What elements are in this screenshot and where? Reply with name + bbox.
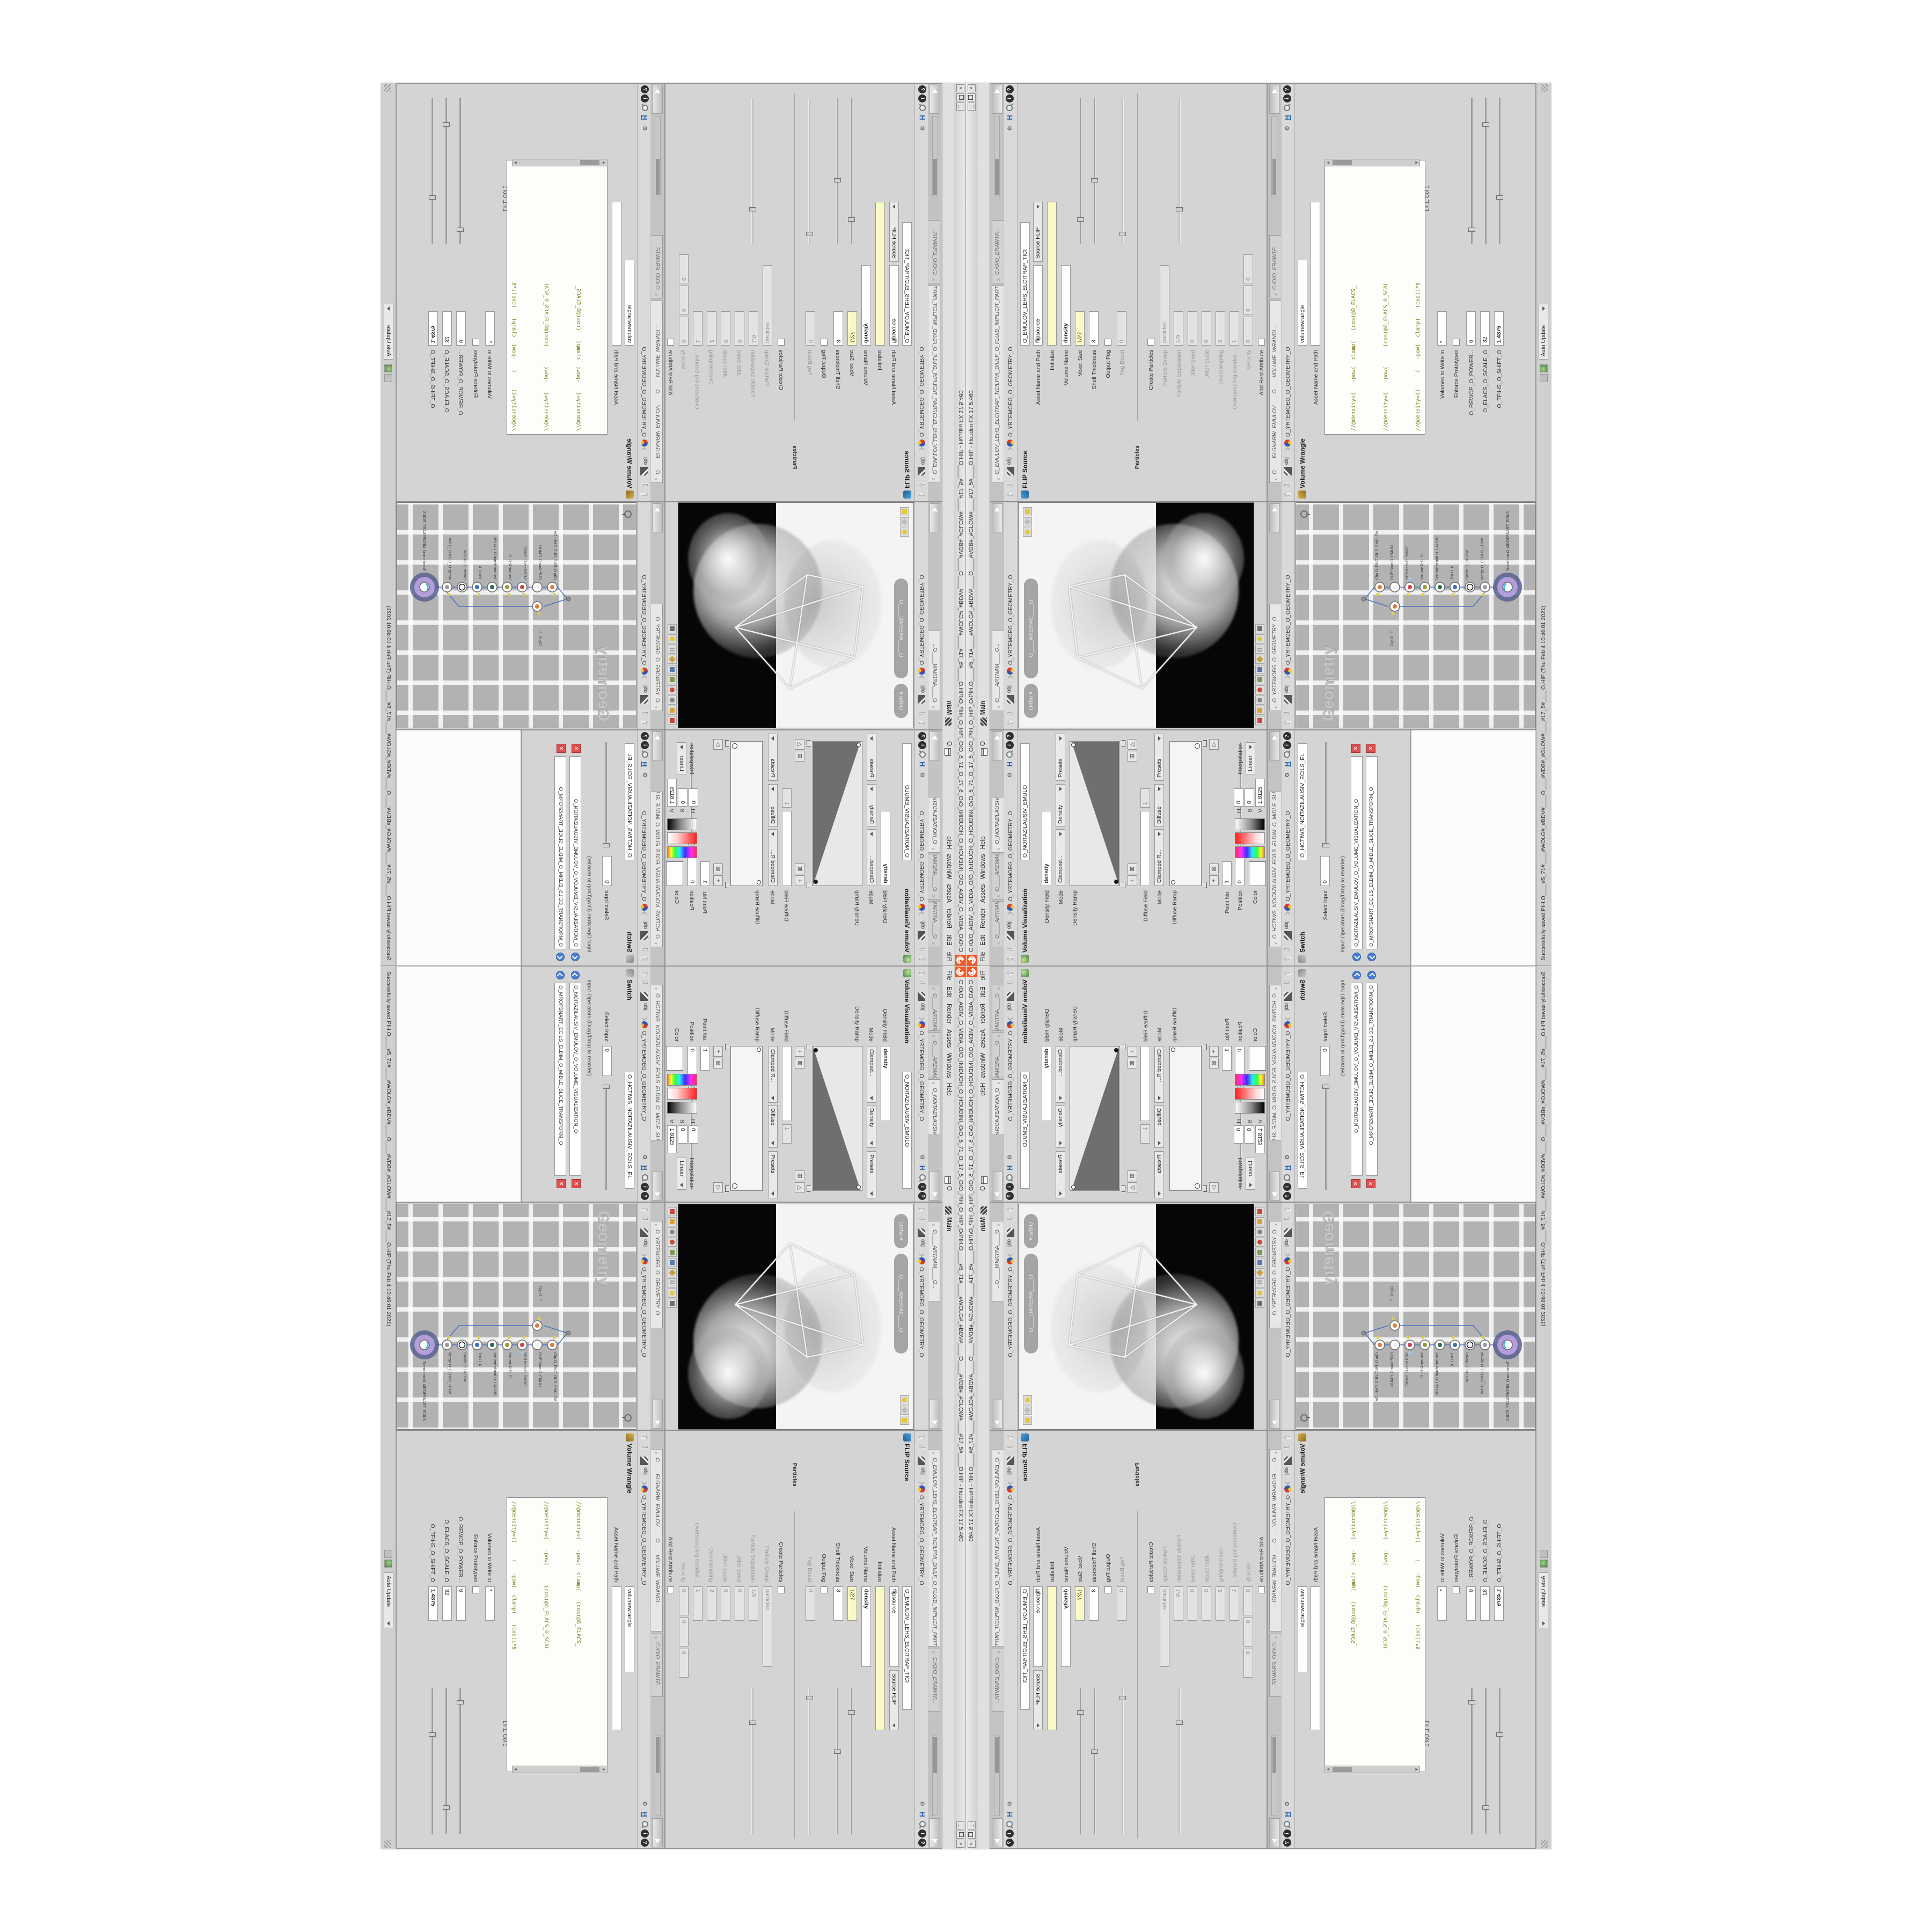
gear-icon[interactable]: ⚙ [917, 123, 927, 133]
density-ramp-editor[interactable] [1070, 741, 1120, 886]
voxel-size-field[interactable]: 1/27 [847, 311, 857, 346]
pane-play-strip[interactable] [992, 731, 1002, 760]
density-presets-dropdown[interactable]: Presets [1056, 734, 1065, 781]
v-field[interactable]: 1.8125 [1255, 779, 1265, 807]
input-operator-2[interactable]: O_MROFSNART_ECILS_ELDIM_O_MIDLE_SLICE_TR… [554, 756, 566, 949]
hue-bar[interactable] [667, 846, 697, 858]
menu-help[interactable]: Help [980, 1083, 986, 1096]
window-layout-o[interactable]: O [946, 1186, 952, 1191]
menu-render[interactable]: Render [946, 1004, 952, 1024]
light-icon[interactable] [1255, 1289, 1264, 1298]
gear-icon[interactable]: ⚙ [917, 1152, 927, 1162]
oversampling-field[interactable]: 2 [1216, 1586, 1225, 1621]
info-icon[interactable]: i [641, 741, 649, 749]
houdini-help-icon[interactable]: H [1283, 1810, 1292, 1819]
search-icon[interactable] [1283, 1820, 1291, 1828]
voxel-size-slider[interactable] [1080, 1688, 1082, 1834]
pin-icon[interactable] [1300, 510, 1308, 518]
oversampling-field[interactable]: 2 [1216, 311, 1225, 346]
input2-delete-button[interactable]: x [1366, 744, 1375, 753]
gear-icon[interactable]: ⚙ [1283, 1152, 1292, 1162]
particle-separation-field[interactable]: 1/9 [749, 311, 758, 346]
ramp-box-button[interactable]: ⊞ [795, 1170, 804, 1181]
vex-snippet-editor[interactable]: //@density=( -pow( clamp( (cos(@O_ELACS_… [1324, 1497, 1425, 1772]
pin-icon[interactable] [1300, 1414, 1308, 1422]
gear-icon[interactable]: ⚙ [640, 123, 649, 133]
search-icon[interactable] [641, 1820, 649, 1828]
source-flip-dropdown[interactable]: Source FLIP [1033, 1670, 1043, 1730]
path-root[interactable]: obj [1283, 1239, 1292, 1247]
tab-volume-wrangle[interactable]: xO____ELGNARW_EMULOV____O____VOLUME_WRAN… [1269, 301, 1281, 483]
shade-icon[interactable] [900, 1395, 909, 1404]
diffuse-tri-button[interactable]: ▷ [1209, 1182, 1219, 1193]
render-icon[interactable] [1255, 655, 1264, 664]
oversampling-bandwidth-field[interactable]: 1 [693, 311, 702, 346]
nav-up-icon[interactable]: ⇧ [917, 1206, 927, 1213]
input2-connect-button[interactable] [556, 971, 565, 979]
asset-name-field[interactable]: flipsource [889, 1586, 899, 1667]
help-icon[interactable]: ? [1283, 732, 1291, 740]
ramp-handle-low[interactable] [1114, 1048, 1118, 1052]
ramp-tri-button[interactable]: △ [1128, 739, 1137, 750]
tab-mantra[interactable]: xO____ARTNAM____O... [992, 985, 1004, 1031]
power-field[interactable]: 6 [456, 1586, 466, 1621]
fog-boost-field[interactable]: 0 [1117, 311, 1126, 346]
select-input-slider[interactable] [1325, 742, 1327, 847]
search-icon[interactable] [1006, 1174, 1014, 1182]
density-dropdown[interactable]: Density [1056, 784, 1065, 827]
nav-up-icon[interactable]: ⇧ [1005, 1434, 1015, 1441]
tab-switch[interactable]: xO_HCTIWS_NOITAZILAUSIV_ECILS_ELDIM_O_MI… [651, 985, 663, 1140]
enforce-prototypes-checkbox[interactable] [472, 1586, 479, 1593]
mode-dropdown[interactable]: Clamped... [867, 1046, 876, 1103]
saturation-bar[interactable] [1235, 832, 1265, 844]
input1-connect-button[interactable] [1352, 971, 1361, 979]
ramp-box-button[interactable]: ⊞ [795, 751, 804, 762]
saturation-bar[interactable] [667, 832, 697, 844]
network-canvas[interactable]: Geometry [397, 502, 636, 728]
move-tool-icon[interactable] [668, 1217, 677, 1226]
camera-pill[interactable]: O____AREMAC____O [1024, 1254, 1038, 1353]
tab-scrollbar[interactable] [994, 116, 1000, 196]
velocity-z-field[interactable]: 0 [1243, 1649, 1253, 1678]
layers-icon[interactable] [1023, 517, 1032, 526]
scale-field[interactable]: 32 [1480, 1586, 1490, 1621]
power-field[interactable]: 6 [1466, 1586, 1476, 1621]
diffuse-field-value[interactable] [1140, 811, 1150, 886]
particle-group-field[interactable]: particles [1160, 265, 1169, 346]
light-icon[interactable] [1255, 634, 1264, 643]
power-slider[interactable] [1471, 98, 1473, 244]
close-button[interactable]: × [956, 84, 964, 92]
tab-network[interactable]: xO_YRTEMOEG_O_GEOMETRY_O [651, 1221, 663, 1328]
shell-thickness-slider[interactable] [836, 98, 838, 244]
pane-play-strip[interactable] [992, 1818, 1002, 1847]
ramp-delete-button[interactable]: ⊠ [795, 863, 804, 874]
tab-scrollbar[interactable] [1271, 116, 1277, 196]
scale-slider[interactable] [445, 1688, 447, 1834]
diffuse-presets-dropdown[interactable]: Presets [1154, 1151, 1164, 1198]
tab-software-path[interactable]: xC:/O/O_ERAWTF... [1269, 1634, 1281, 1697]
menu-file[interactable]: File [980, 970, 986, 980]
tab-scene-view[interactable]: xO____ARTNAM____O... [928, 631, 940, 711]
shift-field[interactable]: 1.4375 [428, 311, 438, 346]
density-field-value[interactable]: density [1042, 1046, 1051, 1121]
initialize-field[interactable] [875, 202, 885, 346]
update-mode-dropdown[interactable]: Auto Update [1539, 1572, 1548, 1628]
input-operator-1[interactable]: O_NOITAZILAUSIV_EMULOV_O_VOLUME_VISUALIZ… [1351, 756, 1363, 949]
source-flip-dropdown[interactable]: Source FLIP [889, 1670, 899, 1730]
gear-icon[interactable]: ⚙ [917, 770, 927, 780]
camera-icon[interactable] [1255, 624, 1264, 633]
path-root[interactable]: obj [1283, 685, 1292, 693]
density-field-value[interactable]: density [881, 811, 890, 886]
layers-icon[interactable] [900, 1406, 909, 1415]
particle-group-field[interactable]: particles [763, 1586, 772, 1667]
menu-help[interactable]: Help [946, 1083, 952, 1096]
particle-separation-slider[interactable] [751, 1688, 753, 1834]
shell-thickness-field[interactable]: 3 [1089, 311, 1099, 346]
diffuse-handle-left[interactable] [1171, 1048, 1175, 1052]
path-root[interactable]: obj [1006, 685, 1015, 693]
nav-up-icon[interactable]: ⇧ [917, 1434, 927, 1441]
select-input-slider[interactable] [605, 1085, 607, 1190]
pane-play-strip[interactable] [1269, 731, 1280, 760]
menu-edit[interactable]: Edit [946, 935, 952, 946]
gear-icon[interactable]: ⚙ [1283, 123, 1292, 133]
velocity-x-field[interactable]: 0 [679, 317, 689, 346]
volumes-to-write-field[interactable]: * [485, 1586, 495, 1621]
velocity-x-field[interactable]: 0 [679, 1586, 689, 1615]
help-icon[interactable]: ? [641, 1192, 649, 1200]
nav-down-icon[interactable]: ⇩ [640, 481, 649, 488]
pane-play-strip[interactable] [930, 1818, 940, 1847]
ortho-pill[interactable]: Ortho ▾ [894, 684, 908, 718]
ramp-add-button[interactable]: + [795, 875, 804, 886]
fog-boost-slider[interactable] [1122, 1688, 1124, 1834]
add-rest-attribute-checkbox[interactable] [1258, 339, 1265, 346]
input-operator-1[interactable]: O_NOITAZILAUSIV_EMULOV_O_VOLUME_VISUALIZ… [569, 983, 581, 1176]
view-icon[interactable] [668, 665, 677, 674]
nav-up-icon[interactable]: ⇧ [640, 1206, 649, 1213]
tab-software-path[interactable]: xC:/O/O_ERAWTF... [1269, 235, 1281, 298]
output-fog-checkbox[interactable] [821, 1586, 828, 1593]
asset-name-field[interactable] [1311, 202, 1320, 346]
notes-icon[interactable] [1023, 507, 1032, 516]
voxel-size-slider[interactable] [850, 98, 852, 244]
info-icon[interactable]: i [641, 1829, 649, 1838]
ortho-pill[interactable]: Ortho ▾ [1024, 1214, 1038, 1248]
density-field-value[interactable]: density [1042, 811, 1051, 886]
power-slider[interactable] [459, 98, 461, 244]
scale-tool-icon[interactable] [668, 685, 677, 694]
path-node[interactable]: O_YRTEMOEG_O_GEOMETRY_O [641, 1495, 647, 1613]
input-operator-2[interactable]: O_MROFSNART_ECILS_ELDIM_O_MIDLE_SLICE_TR… [554, 983, 566, 1176]
window-layout-o[interactable]: O [980, 1186, 986, 1191]
path-node[interactable]: O_YRTEMOEG_O_GEOMETRY_O [641, 563, 647, 665]
h-field[interactable]: 0 [689, 788, 698, 807]
volviz-node-name-field[interactable] [902, 743, 912, 860]
path-node[interactable]: O_YRTEMOEG_O_GEOMETRY_O [1285, 1495, 1291, 1613]
path-root[interactable]: obj [640, 1239, 649, 1247]
diffuse-delete-button[interactable]: ⊠ [713, 863, 723, 874]
source-flip-dropdown[interactable]: Source FLIP [889, 202, 899, 262]
input1-connect-button[interactable] [571, 971, 580, 979]
tab-volume-visualization[interactable]: xO_NOITAZILAUSIV... [992, 797, 1004, 853]
shell-thickness-slider[interactable] [836, 1688, 838, 1834]
tab-software-path[interactable]: xC:/O/O_ERAWTF... [992, 1649, 1004, 1712]
tab-network[interactable]: xO_YRTEMOEG_O_GEOMETRY_O [1269, 604, 1281, 711]
path-root[interactable]: obj [1006, 1003, 1015, 1011]
input2-connect-button[interactable] [556, 953, 565, 961]
gear-icon[interactable]: ⚙ [640, 770, 649, 780]
velocity-z-field[interactable]: 0 [679, 254, 689, 283]
output-fog-checkbox[interactable] [1104, 1586, 1111, 1593]
resize-grip[interactable] [384, 1840, 391, 1848]
ramp-handle-high[interactable] [857, 743, 861, 747]
tab-flip-source[interactable]: xO_EMULOV_LEHS_ELCITRAP_TICILPMI_DIULF_O… [928, 1449, 940, 1646]
value-bar[interactable] [1235, 1102, 1265, 1114]
ramp-handle-high[interactable] [1071, 1185, 1075, 1189]
desk-selector[interactable]: Main [946, 701, 952, 715]
add-rest-attribute-checkbox[interactable] [667, 1586, 674, 1593]
density-presets-dropdown[interactable]: Presets [1056, 1151, 1065, 1198]
tab-volume-wrangle[interactable]: xO____ELGNARW_EMULOV____O____VOLUME_WRAN… [1269, 1449, 1281, 1631]
nav-up-icon[interactable]: ⇧ [1283, 719, 1292, 726]
position-field[interactable]: 0 [687, 1046, 697, 1076]
source-flip-dropdown[interactable]: Source FLIP [1033, 202, 1043, 262]
tab-scrollbar[interactable] [994, 1736, 1000, 1816]
path-root[interactable]: obj [1283, 1003, 1292, 1011]
rotate-tool-icon[interactable] [668, 1227, 677, 1236]
diffuse-handle-right[interactable] [1195, 743, 1200, 749]
pane-play-strip[interactable] [930, 1172, 940, 1201]
shell-thickness-field[interactable]: 3 [833, 1586, 843, 1621]
velocity-z-field[interactable]: 0 [1243, 254, 1253, 283]
scale-field[interactable]: 32 [442, 311, 452, 346]
ramp-add-button[interactable]: + [1128, 1046, 1137, 1057]
shell-thickness-slider[interactable] [1094, 98, 1096, 244]
houdini-help-icon[interactable]: H [1005, 759, 1015, 769]
tab-volume-visualization[interactable]: xO_NOITAZILAUSIV... [928, 797, 940, 853]
interpolation-dropdown[interactable]: Linear [1246, 1158, 1255, 1190]
input1-delete-button[interactable]: x [1351, 1179, 1360, 1188]
diffuse-mode-dropdown[interactable]: Clamped R... [1154, 829, 1164, 886]
menu-assets[interactable]: Assets [946, 884, 952, 903]
oversampling-bandwidth-field[interactable]: 1 [1230, 311, 1239, 346]
tab-flip-source[interactable]: xO_EMULOV_LEHS_ELCITRAP_TICILPMI_DIULF_O… [992, 1449, 1004, 1646]
color-swatch[interactable] [1249, 1046, 1266, 1071]
help-icon[interactable]: ? [641, 1839, 649, 1847]
nav-down-icon[interactable]: ⇩ [640, 1444, 649, 1451]
input-operator-1[interactable]: O_NOITAZILAUSIV_EMULOV_O_VOLUME_VISUALIZ… [1351, 983, 1363, 1176]
path-node[interactable]: O_YRTEMOEG_O_GEOMETRY_O [641, 319, 647, 437]
info-icon[interactable]: i [1283, 94, 1291, 103]
nav-up-icon[interactable]: ⇧ [1005, 970, 1015, 977]
input2-delete-button[interactable]: x [557, 1179, 566, 1188]
search-icon[interactable] [641, 104, 649, 112]
houdini-help-icon[interactable]: H [1005, 1810, 1015, 1819]
saturation-bar[interactable] [667, 1088, 697, 1100]
velocity-y-field[interactable]: 0 [679, 286, 689, 314]
particle-separation-slider[interactable] [751, 98, 753, 244]
tab-switch[interactable]: xO_HCTIWS_NOITAZILAUSIV_ECILS_ELDIM_O_MI… [1269, 792, 1281, 947]
path-root[interactable]: obj [1006, 1467, 1015, 1475]
nav-down-icon[interactable]: ⇩ [1283, 946, 1292, 953]
volumes-to-write-field[interactable]: * [1437, 311, 1447, 346]
gear-icon[interactable]: ⚙ [1283, 770, 1292, 780]
nav-up-icon[interactable]: ⇧ [640, 491, 649, 498]
diffuse-handle-left[interactable] [1171, 880, 1175, 884]
menu-help[interactable]: Help [946, 836, 952, 849]
path-root[interactable]: obj [917, 1003, 926, 1011]
create-particles-checkbox[interactable] [1147, 339, 1154, 346]
nav-up-icon[interactable]: ⇧ [1005, 955, 1015, 962]
layers-icon[interactable] [1023, 1406, 1032, 1415]
search-icon[interactable] [918, 1820, 926, 1828]
select-input-field[interactable]: 0 [1320, 1046, 1330, 1076]
search-icon[interactable] [1006, 104, 1014, 112]
view-icon[interactable] [1255, 665, 1264, 674]
diffuse-field-value[interactable] [1140, 1046, 1150, 1121]
help-icon[interactable]: ? [1283, 1839, 1291, 1847]
scale-tool-icon[interactable] [1255, 1238, 1264, 1247]
nav-down-icon[interactable]: ⇩ [1283, 979, 1292, 986]
pane-play-strip[interactable] [1269, 1400, 1280, 1429]
nav-down-icon[interactable]: ⇩ [640, 1216, 649, 1223]
path-node[interactable]: O_YRTEMOEG_O_GEOMETRY_O [1007, 563, 1014, 665]
help-icon[interactable]: ? [641, 732, 649, 740]
render-icon[interactable] [1255, 1268, 1264, 1277]
enforce-prototypes-checkbox[interactable] [1453, 339, 1460, 346]
volviz-node-name-field[interactable] [902, 1072, 912, 1189]
value-bar[interactable] [667, 1102, 697, 1114]
path-root[interactable]: obj [1006, 1239, 1015, 1247]
camera-icon[interactable] [1255, 1299, 1264, 1308]
power-slider[interactable] [459, 1688, 461, 1834]
gear-icon[interactable]: ⚙ [1005, 123, 1015, 133]
nav-down-icon[interactable]: ⇩ [1005, 709, 1015, 716]
info-icon[interactable]: i [1006, 94, 1014, 103]
ramp-delete-button[interactable]: ⊠ [1128, 1058, 1137, 1069]
houdini-help-icon[interactable]: H [917, 1163, 927, 1173]
value-bar[interactable] [1235, 818, 1265, 830]
tab-scrollbar[interactable] [1271, 1736, 1277, 1816]
close-button[interactable]: × [956, 1840, 964, 1848]
scale-field[interactable]: 32 [1480, 311, 1490, 346]
input2-connect-button[interactable] [1367, 971, 1376, 979]
ramp-tri-button[interactable]: △ [795, 739, 804, 750]
info-icon[interactable]: i [1283, 741, 1291, 749]
density-dropdown[interactable]: Density [1056, 1105, 1065, 1148]
rotate-tool-icon[interactable] [1255, 1227, 1264, 1236]
diffuse-add-button[interactable]: + [713, 1046, 723, 1057]
gear-icon[interactable]: ⚙ [1283, 1799, 1292, 1809]
snap-icon[interactable] [668, 675, 677, 684]
menu-help[interactable]: Help [980, 836, 986, 849]
ramp-marker-right[interactable] [1119, 1185, 1125, 1192]
rotate-tool-icon[interactable] [1255, 696, 1264, 705]
tab-volume-visualization[interactable]: xO_NOITAZILAUSIV... [928, 1079, 940, 1135]
diffuse-tri-button[interactable]: ▷ [713, 739, 723, 750]
pane-play-strip[interactable] [992, 85, 1002, 114]
path-root[interactable]: obj [1006, 921, 1015, 929]
menu-windows[interactable]: Windows [980, 854, 986, 879]
shift-field[interactable]: 1.4375 [1494, 1586, 1504, 1621]
velocity-y-field[interactable]: 0 [1243, 1618, 1253, 1646]
camera-icon[interactable] [668, 624, 677, 633]
diffuse-marker-right[interactable] [1201, 1185, 1207, 1192]
output-fog-checkbox[interactable] [1104, 339, 1111, 346]
ramp-tri-button[interactable]: △ [1128, 1182, 1137, 1193]
diffuse-handle-right[interactable] [1195, 1183, 1200, 1189]
color-swatch[interactable] [666, 861, 683, 886]
notes-icon[interactable] [900, 1416, 909, 1425]
input-operator-2[interactable]: O_MROFSNART_ECILS_ELDIM_O_MIDLE_SLICE_TR… [1366, 983, 1378, 1176]
tab-mantra[interactable]: xO____ARTNAM____O... [928, 901, 940, 947]
fog-boost-field[interactable]: 0 [806, 311, 815, 346]
select-tool-icon[interactable] [668, 1207, 677, 1216]
scale-slider[interactable] [1485, 98, 1487, 244]
network-canvas[interactable]: Geometry [1296, 502, 1535, 728]
maximize-button[interactable] [956, 93, 964, 101]
path-root[interactable]: obj [917, 685, 926, 693]
s-field[interactable]: 0 [678, 788, 687, 807]
menu-edit[interactable]: Edit [980, 986, 986, 997]
path-node[interactable]: O_YRTEMOEG_O_GEOMETRY_O [1007, 799, 1014, 901]
wrangle-node-name-field[interactable] [625, 1586, 634, 1672]
tab-network[interactable]: xO_YRTEMOEG_O_GEOMETRY_O [1269, 1221, 1281, 1328]
light-icon[interactable] [668, 634, 677, 643]
h-field[interactable]: 0 [1234, 788, 1243, 807]
volumes-to-write-field[interactable]: * [485, 311, 495, 346]
create-particles-checkbox[interactable] [778, 339, 785, 346]
mode-dropdown[interactable]: Clamped... [1056, 829, 1065, 886]
maximize-button[interactable] [956, 1831, 964, 1839]
tab-software-path[interactable]: xC:/O/O_ERAWTF... [651, 235, 663, 298]
tab-scene-view[interactable]: xO____ARTNAM____O... [992, 1221, 1004, 1301]
search-icon[interactable] [641, 1174, 649, 1182]
input1-connect-button[interactable] [571, 953, 580, 961]
path-root[interactable]: obj [640, 1003, 649, 1011]
shift-field[interactable]: 1.4375 [428, 1586, 438, 1621]
particle-separation-field[interactable]: 1/9 [1174, 1586, 1183, 1621]
menu-windows[interactable]: Windows [946, 854, 952, 879]
render-icon[interactable] [668, 655, 677, 664]
ramp-delete-button[interactable]: ⊠ [795, 1058, 804, 1069]
velocity-x-field[interactable]: 0 [1243, 1586, 1253, 1615]
path-node[interactable]: O_YRTEMOEG_O_GEOMETRY_O [918, 1495, 925, 1613]
menu-file[interactable]: File [946, 952, 952, 962]
render-icon[interactable] [668, 1268, 677, 1277]
minimize-button[interactable]: _ [968, 103, 976, 111]
vex-snippet-editor[interactable]: //@density=( -pow( clamp( (cos(@O_ELACS_… [507, 160, 608, 435]
ramp-box-button[interactable]: ⊞ [1128, 751, 1137, 762]
move-tool-icon[interactable] [1255, 1217, 1264, 1226]
nav-up-icon[interactable]: ⇧ [1283, 491, 1292, 498]
viewport-3d-canvas[interactable]: Ortho ▾ O____AREMAC____O [678, 502, 914, 728]
window-layout-icon[interactable] [945, 748, 951, 756]
switch-node-name-field[interactable] [1298, 743, 1307, 860]
rotate-tool-icon[interactable] [668, 696, 677, 705]
info-icon[interactable]: i [1006, 1829, 1014, 1838]
help-icon[interactable]: ? [918, 1839, 926, 1847]
grid-icon[interactable] [668, 1278, 677, 1287]
ramp-marker-right[interactable] [1119, 740, 1125, 747]
camera-pill[interactable]: O____AREMAC____O [894, 1254, 908, 1353]
path-root[interactable]: obj [917, 921, 926, 929]
path-node[interactable]: O_YRTEMOEG_O_GEOMETRY_O [1285, 319, 1291, 437]
